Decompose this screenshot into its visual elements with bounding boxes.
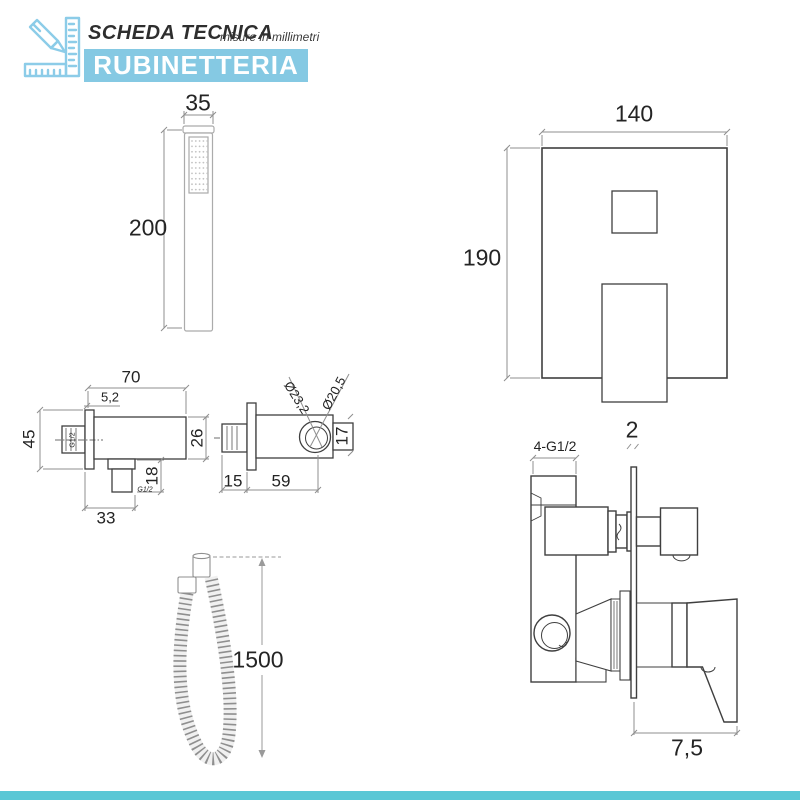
flexible-hose-drawing [178,553,230,758]
dim-elbow-plate-thickness: 5,2 [101,391,119,404]
dim-hose-length: 1500 [232,649,283,672]
dim-handshower-width: 35 [185,92,211,115]
dim-mixer-handle-depth: 7,5 [671,737,703,760]
dim-elbow-plate-height: 45 [21,430,38,449]
dim-holder-grip-width: 17 [334,427,351,446]
label-mixer-connections: 4-G1/2 [534,439,577,453]
dim-handshower-height: 200 [129,217,167,240]
dim-mixer-plate-thickness: 2 [626,419,639,442]
footer-accent-strip [0,791,800,800]
dim-plate-height: 190 [463,247,501,270]
label-elbow-thread-side: G1/2 [70,432,77,447]
dim-elbow-outlet-height: 18 [144,467,161,486]
dim-elbow-body-height: 26 [189,429,206,448]
dim-plate-width: 140 [615,103,653,126]
technical-sheet: SCHEDA TECNICA misure in millimetri RUBI… [0,0,800,800]
built-in-plate-drawing [542,148,727,402]
dim-elbow-bottom-width: 33 [97,510,116,527]
outlet-elbow-drawing [55,410,186,492]
label-elbow-thread-bottom: G1/2 [137,487,152,494]
drawings-canvas [0,0,800,800]
dim-holder-flange-depth: 15 [224,473,243,490]
dim-holder-body-length: 59 [272,473,291,490]
dim-elbow-depth: 70 [122,369,141,386]
hand-shower-drawing [183,126,214,331]
mixer-body-drawing [531,467,737,722]
